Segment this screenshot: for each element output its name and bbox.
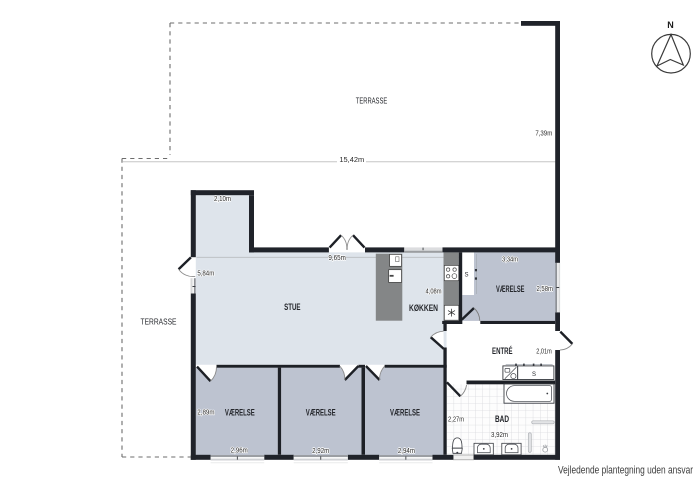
svg-text:N: N xyxy=(667,20,674,30)
svg-text:Vejledende plantegning uden an: Vejledende plantegning uden ansvar xyxy=(558,464,694,476)
svg-text:2,94m: 2,94m xyxy=(398,447,416,454)
svg-text:2,96m: 2,96m xyxy=(231,447,249,454)
svg-text:VÆRELSE: VÆRELSE xyxy=(225,407,255,418)
svg-text:2,01m: 2,01m xyxy=(536,348,551,356)
svg-text:9,65m: 9,65m xyxy=(328,255,346,262)
svg-text:KØKKEN: KØKKEN xyxy=(409,303,438,313)
svg-text:3,34m: 3,34m xyxy=(502,256,518,264)
svg-text:ENTRÉ: ENTRÉ xyxy=(492,346,513,357)
svg-text:15,42m: 15,42m xyxy=(339,155,364,164)
svg-text:S: S xyxy=(464,273,468,279)
svg-text:5,84m: 5,84m xyxy=(197,270,214,277)
svg-text:7,39m: 7,39m xyxy=(535,130,552,137)
svg-text:2,27m: 2,27m xyxy=(448,416,464,424)
svg-text:2,89m: 2,89m xyxy=(197,409,215,416)
svg-text:TERRASSE: TERRASSE xyxy=(356,98,388,106)
svg-text:VÆRELSE: VÆRELSE xyxy=(390,407,420,418)
svg-text:BAD: BAD xyxy=(495,414,509,424)
svg-text:VÆRELSE: VÆRELSE xyxy=(306,407,336,418)
svg-text:2,92m: 2,92m xyxy=(312,447,330,454)
svg-text:TERRASSE: TERRASSE xyxy=(141,317,177,327)
svg-text:STUE: STUE xyxy=(284,302,300,313)
svg-text:VÆRELSE: VÆRELSE xyxy=(496,284,524,295)
svg-text:2,10m: 2,10m xyxy=(214,196,231,203)
svg-text:2,58m: 2,58m xyxy=(536,285,552,293)
svg-text:4,08m: 4,08m xyxy=(426,288,442,296)
svg-text:3,92m: 3,92m xyxy=(491,432,508,439)
svg-text:S: S xyxy=(532,372,536,378)
